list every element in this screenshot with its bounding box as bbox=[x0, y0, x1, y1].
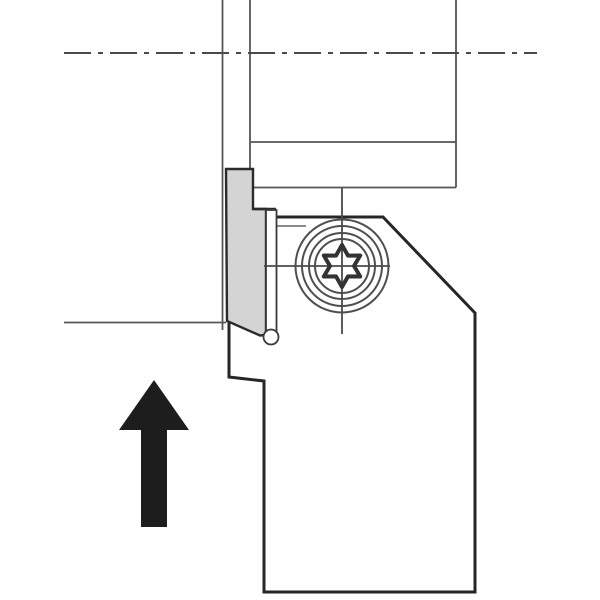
diagram-background bbox=[0, 0, 600, 600]
insert-finger bbox=[266, 210, 277, 331]
diagram-page bbox=[0, 0, 600, 600]
insert-nose bbox=[264, 330, 279, 345]
diagram-canvas bbox=[0, 0, 600, 600]
